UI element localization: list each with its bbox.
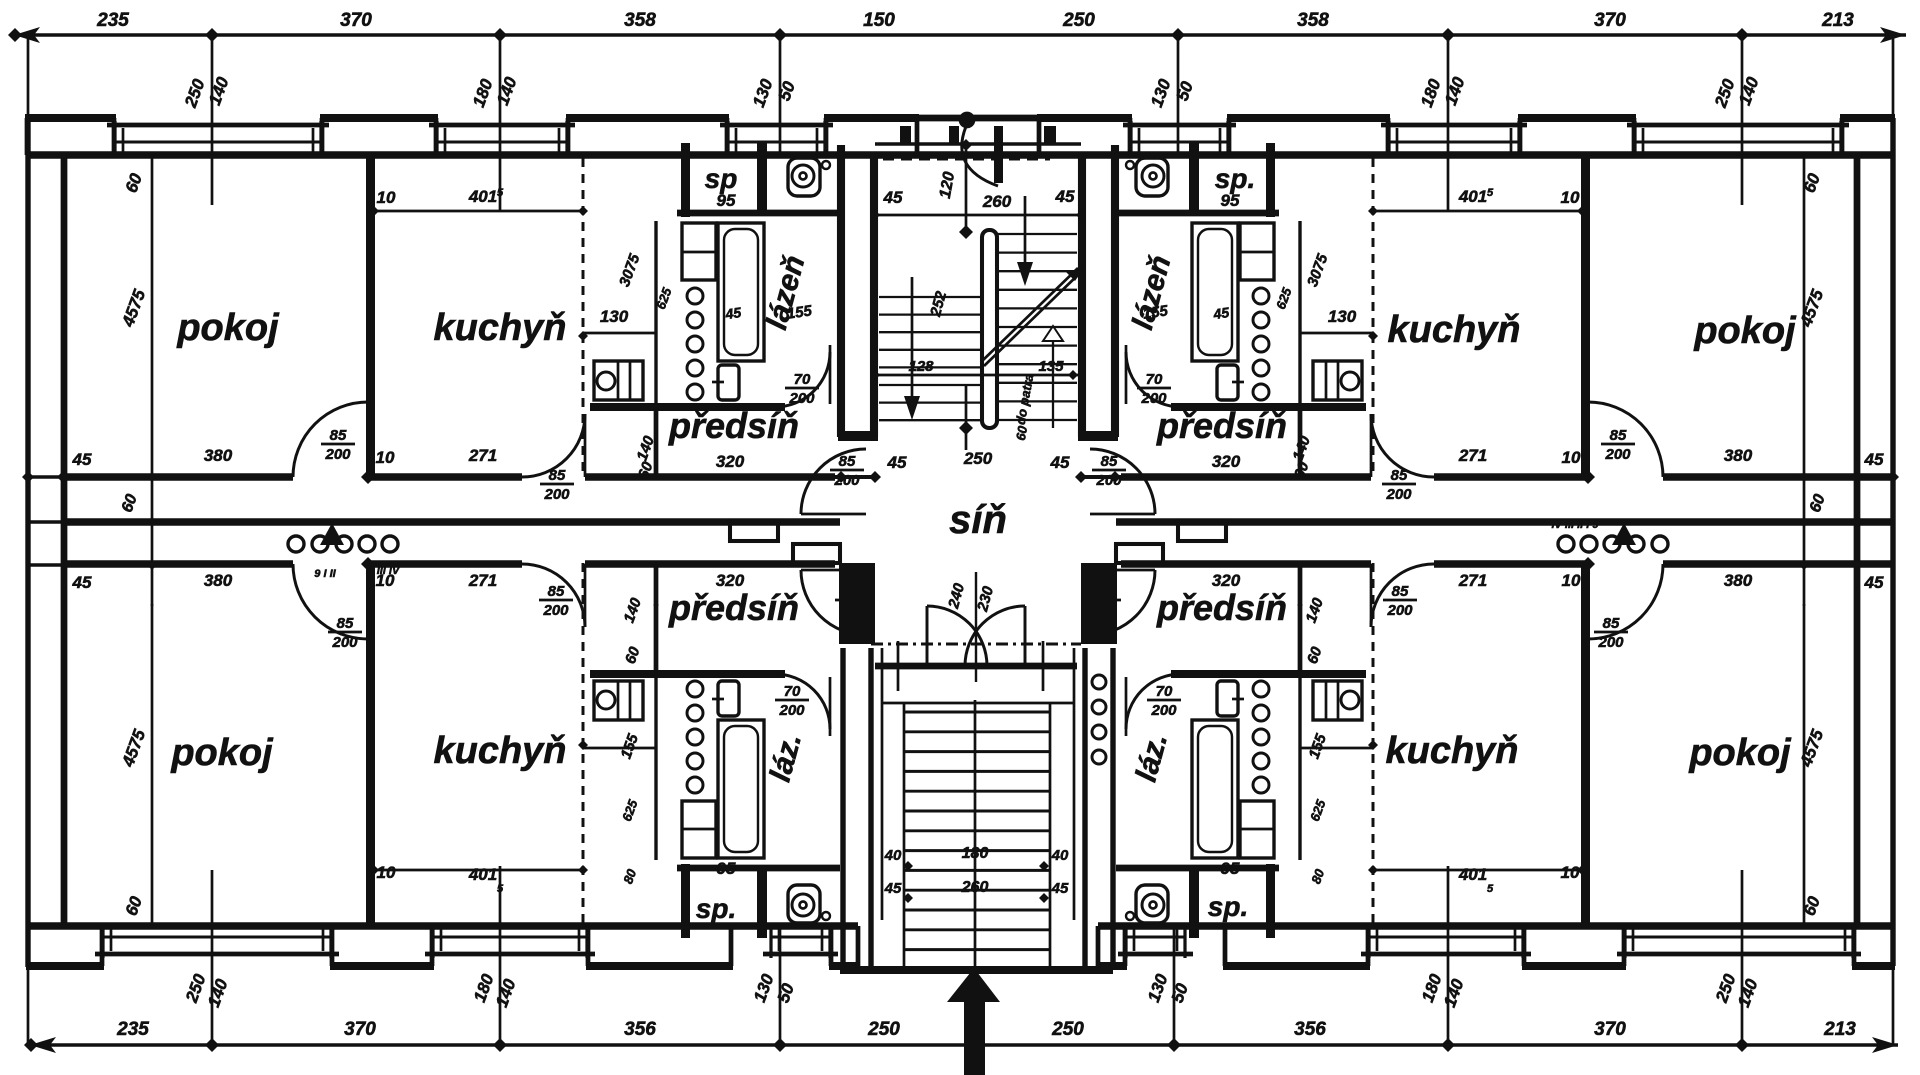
svg-text:70: 70 xyxy=(794,371,811,388)
svg-text:70: 70 xyxy=(1156,683,1173,700)
svg-text:10: 10 xyxy=(376,571,395,590)
svg-text:200: 200 xyxy=(833,472,860,489)
svg-text:40: 40 xyxy=(884,847,902,864)
svg-text:70: 70 xyxy=(1146,371,1163,388)
svg-text:380: 380 xyxy=(204,571,233,590)
svg-text:10: 10 xyxy=(1561,863,1580,882)
svg-text:85: 85 xyxy=(1610,427,1627,444)
svg-text:370: 370 xyxy=(1594,10,1626,31)
svg-text:85: 85 xyxy=(1101,453,1118,470)
svg-text:370: 370 xyxy=(344,1019,376,1040)
svg-text:IV III II I 9: IV III II I 9 xyxy=(1551,519,1599,531)
svg-text:271: 271 xyxy=(1458,446,1487,465)
svg-text:45: 45 xyxy=(1050,453,1070,472)
svg-text:358: 358 xyxy=(624,10,656,31)
svg-text:45: 45 xyxy=(723,304,742,322)
svg-text:200: 200 xyxy=(543,486,570,503)
svg-text:200: 200 xyxy=(1385,486,1412,503)
svg-text:200: 200 xyxy=(1597,634,1624,651)
svg-text:213: 213 xyxy=(1823,1019,1856,1040)
svg-text:5: 5 xyxy=(1487,883,1494,895)
svg-text:45: 45 xyxy=(72,573,92,592)
svg-text:200: 200 xyxy=(1150,702,1177,719)
svg-text:401: 401 xyxy=(468,187,497,206)
svg-text:213: 213 xyxy=(1821,10,1854,31)
svg-text:45: 45 xyxy=(1864,573,1884,592)
svg-text:235: 235 xyxy=(116,1019,149,1040)
svg-text:271: 271 xyxy=(468,446,497,465)
svg-text:200: 200 xyxy=(324,446,351,463)
svg-text:271: 271 xyxy=(1458,571,1487,590)
svg-text:130: 130 xyxy=(1328,307,1357,326)
svg-text:sp.: sp. xyxy=(1208,891,1248,922)
svg-text:85: 85 xyxy=(1392,583,1409,600)
svg-text:5: 5 xyxy=(497,883,504,895)
svg-text:45: 45 xyxy=(884,880,902,897)
svg-text:předsíň: předsíň xyxy=(1156,587,1287,628)
svg-text:370: 370 xyxy=(340,10,372,31)
svg-text:401: 401 xyxy=(468,865,497,884)
svg-text:271: 271 xyxy=(468,571,497,590)
svg-text:85: 85 xyxy=(1391,467,1408,484)
svg-text:320: 320 xyxy=(1212,571,1241,590)
svg-text:předsíň: předsíň xyxy=(668,587,799,628)
svg-text:kuchyň: kuchyň xyxy=(433,307,566,349)
svg-text:45: 45 xyxy=(72,450,92,469)
svg-text:85: 85 xyxy=(549,467,566,484)
svg-text:380: 380 xyxy=(1724,571,1753,590)
svg-text:45: 45 xyxy=(1055,187,1075,206)
svg-text:předsíň: předsíň xyxy=(1156,405,1287,446)
svg-text:155: 155 xyxy=(786,302,814,322)
svg-text:380: 380 xyxy=(204,446,233,465)
svg-text:260: 260 xyxy=(982,192,1012,211)
svg-text:401: 401 xyxy=(1458,187,1487,206)
svg-text:135: 135 xyxy=(1038,358,1064,375)
svg-text:401: 401 xyxy=(1458,865,1487,884)
svg-text:200: 200 xyxy=(331,634,358,651)
svg-text:85: 85 xyxy=(839,453,856,470)
svg-text:380: 380 xyxy=(1724,446,1753,465)
svg-text:45: 45 xyxy=(883,188,903,207)
svg-text:130: 130 xyxy=(600,307,629,326)
svg-text:150: 150 xyxy=(863,10,895,31)
svg-text:250: 250 xyxy=(1062,10,1095,31)
svg-text:250: 250 xyxy=(1051,1019,1084,1040)
svg-text:200: 200 xyxy=(1386,602,1413,619)
svg-text:kuchyň: kuchyň xyxy=(1385,730,1518,772)
svg-text:128: 128 xyxy=(908,358,934,375)
svg-text:250: 250 xyxy=(963,449,993,468)
svg-text:síň: síň xyxy=(949,498,1007,542)
svg-text:370: 370 xyxy=(1594,1019,1626,1040)
svg-text:9 I II: 9 I II xyxy=(314,568,336,580)
svg-text:sp.: sp. xyxy=(1215,163,1255,194)
svg-text:10: 10 xyxy=(377,188,396,207)
svg-text:sp: sp xyxy=(705,163,738,194)
svg-text:pokoj: pokoj xyxy=(1693,310,1797,352)
svg-text:pokoj: pokoj xyxy=(176,307,280,349)
svg-text:kuchyň: kuchyň xyxy=(1387,309,1520,351)
svg-text:45: 45 xyxy=(1051,880,1069,897)
svg-text:95: 95 xyxy=(717,859,736,878)
svg-text:5: 5 xyxy=(1487,187,1494,199)
svg-text:45: 45 xyxy=(887,453,907,472)
svg-text:pokoj: pokoj xyxy=(1688,732,1792,774)
svg-text:356: 356 xyxy=(624,1019,656,1040)
svg-text:sp.: sp. xyxy=(696,893,736,924)
svg-text:200: 200 xyxy=(1604,446,1631,463)
svg-text:200: 200 xyxy=(1095,472,1122,489)
svg-text:10: 10 xyxy=(376,448,395,467)
svg-text:250: 250 xyxy=(867,1019,900,1040)
svg-text:10: 10 xyxy=(377,863,396,882)
svg-text:10: 10 xyxy=(1562,448,1581,467)
svg-text:155: 155 xyxy=(1142,302,1170,322)
svg-text:kuchyň: kuchyň xyxy=(433,730,566,772)
svg-text:95: 95 xyxy=(1221,859,1240,878)
svg-text:200: 200 xyxy=(542,602,569,619)
svg-text:358: 358 xyxy=(1297,10,1329,31)
svg-text:200: 200 xyxy=(778,702,805,719)
svg-text:320: 320 xyxy=(716,452,745,471)
svg-text:95: 95 xyxy=(717,191,736,210)
svg-text:85: 85 xyxy=(330,427,347,444)
svg-text:180: 180 xyxy=(962,845,989,862)
svg-text:40: 40 xyxy=(1051,847,1069,864)
svg-text:85: 85 xyxy=(548,583,565,600)
svg-text:5: 5 xyxy=(497,187,504,199)
svg-text:70: 70 xyxy=(784,683,801,700)
svg-text:260: 260 xyxy=(961,879,989,896)
svg-text:10: 10 xyxy=(1562,571,1581,590)
svg-text:pokoj: pokoj xyxy=(170,732,274,774)
svg-text:10: 10 xyxy=(1561,188,1580,207)
svg-text:320: 320 xyxy=(716,571,745,590)
svg-text:200: 200 xyxy=(1140,390,1167,407)
svg-text:45: 45 xyxy=(1211,304,1230,322)
svg-text:45: 45 xyxy=(1864,450,1884,469)
svg-text:235: 235 xyxy=(96,10,129,31)
svg-text:85: 85 xyxy=(1603,615,1620,632)
svg-text:200: 200 xyxy=(788,390,815,407)
svg-text:95: 95 xyxy=(1221,191,1240,210)
svg-text:předsíň: předsíň xyxy=(668,405,799,446)
svg-text:356: 356 xyxy=(1294,1019,1326,1040)
svg-text:320: 320 xyxy=(1212,452,1241,471)
svg-text:85: 85 xyxy=(337,615,354,632)
